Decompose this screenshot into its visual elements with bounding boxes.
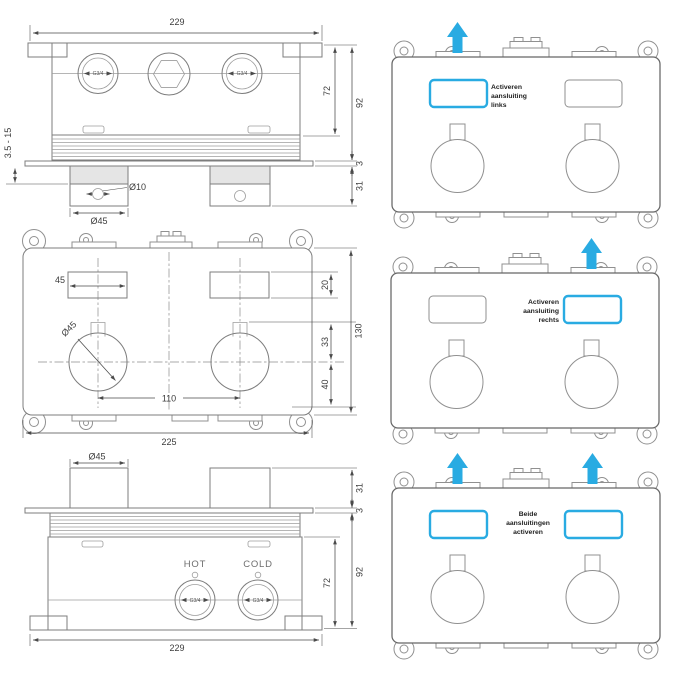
bottom-section-drawing: G3/4 G3/4 HOT COLD Ø45 31 3 92 72 229: [25, 452, 365, 654]
handle-knob-right: [566, 140, 619, 193]
caption-line: aansluiting: [491, 93, 527, 100]
dim-handle-width-label: Ø45: [88, 452, 105, 462]
flange-right: [285, 616, 322, 630]
flange-left: [28, 43, 67, 57]
connection-slot-right-highlighted: [564, 296, 621, 323]
valve-body-geometry: G3/4 G3/4: [25, 468, 322, 630]
top-section-drawing: G3/4 G3/4: [3, 17, 365, 226]
dim-width-label: 229: [169, 17, 184, 27]
dim-protrusion-label: 31: [355, 181, 365, 191]
caption-line: aansluitingen: [506, 520, 550, 527]
caption-line: rechts: [539, 317, 560, 324]
port-hot: G3/4: [175, 580, 215, 620]
handle-stem-left: [450, 555, 465, 571]
handle-left: [70, 468, 128, 508]
connection-slot-left-highlighted: [430, 511, 487, 538]
connection-slot-right: [565, 80, 622, 107]
port-cold-thread-label: G3/4: [253, 598, 264, 604]
port-right: G3/4: [222, 54, 262, 94]
caption-line: activeren: [513, 529, 543, 536]
valve-body: [48, 537, 302, 630]
dim-spacing-label: 110: [162, 394, 176, 404]
valve-body: [52, 43, 300, 135]
dim-total-depth-label: 92: [355, 567, 365, 577]
dim-plate-thickness-label: 3: [355, 508, 365, 513]
port-hot-thread-label: G3/4: [190, 598, 201, 604]
panel-activate-both: Beide aansluitingen activeren: [392, 453, 660, 659]
caption-line: links: [491, 102, 507, 109]
dim-slot-width-label: 45: [55, 275, 65, 285]
port-right-thread-label: G3/4: [237, 71, 248, 77]
dim-total-depth-label: 92: [355, 98, 365, 108]
handle-left: [70, 166, 128, 206]
handle-stem-right: [584, 340, 599, 356]
handle-knob-left: [431, 571, 484, 624]
cold-indicator-dot: [255, 572, 261, 578]
hex-nut-icon: [154, 61, 185, 88]
hot-indicator-dot: [192, 572, 198, 578]
handle-knob-left: [431, 140, 484, 193]
dimension-lines: [6, 25, 357, 217]
handle-stem-left: [449, 340, 464, 356]
caption-line: Activeren: [528, 299, 559, 306]
dim-slot-height-label: 20: [320, 280, 330, 290]
cold-label: COLD: [243, 559, 273, 570]
port-left-thread-label: G3/4: [93, 71, 104, 77]
dimension-lines: [30, 459, 357, 646]
flange-right: [283, 43, 322, 57]
dim-body-depth-label: 72: [322, 86, 332, 96]
panel-activate-left: Activeren aansluiting links: [392, 22, 660, 228]
valve-body-geometry: G3/4 G3/4: [25, 43, 322, 206]
caption-line: Beide: [519, 511, 538, 518]
handle-stem-right: [585, 555, 600, 571]
dim-pin-hole-label: Ø10: [129, 182, 146, 192]
handle-right: [210, 166, 270, 206]
dim-body-width-label: 225: [161, 437, 176, 447]
dim-handle-width-label: Ø45: [90, 216, 107, 226]
port-center-hex: [148, 53, 190, 95]
dim-protrusion-label: 31: [355, 483, 365, 493]
hot-label: HOT: [184, 559, 206, 570]
dim-center-to-bottom-label: 40: [320, 379, 330, 389]
handle-stem-right: [585, 124, 600, 140]
wall-plate: [25, 508, 313, 513]
dim-body-depth-label: 72: [322, 578, 332, 588]
connection-slot-left-highlighted: [430, 80, 487, 107]
handle-right: [210, 468, 270, 508]
connection-slot-left: [429, 296, 486, 323]
panel-activate-right: Activeren aansluiting rechts: [391, 238, 659, 444]
handle-knob-left: [430, 356, 483, 409]
wall-plate: [25, 161, 313, 166]
connection-slot-right-highlighted: [565, 511, 622, 538]
dim-width-label: 229: [169, 643, 184, 653]
handle-knob-right: [566, 571, 619, 624]
dim-plaster-range-label: 3.5 - 15: [3, 128, 13, 159]
handle-knob-right: [565, 356, 618, 409]
port-cold: G3/4: [238, 580, 278, 620]
technical-diagram: G3/4 G3/4: [0, 0, 685, 685]
dim-plate-thickness-label: 3: [355, 161, 365, 166]
dim-body-height-label: 130: [354, 323, 364, 338]
dim-slot-to-center-label: 33: [320, 337, 330, 347]
handle-stem-left: [450, 124, 465, 140]
caption-line: aansluiting: [523, 308, 559, 315]
technical-diagram-page: G3/4 G3/4: [0, 0, 685, 685]
front-view-drawing: 45 Ø45 110 225 20 33 40 130: [23, 230, 364, 448]
port-left: G3/4: [78, 54, 118, 94]
caption-line: Activeren: [491, 84, 522, 91]
